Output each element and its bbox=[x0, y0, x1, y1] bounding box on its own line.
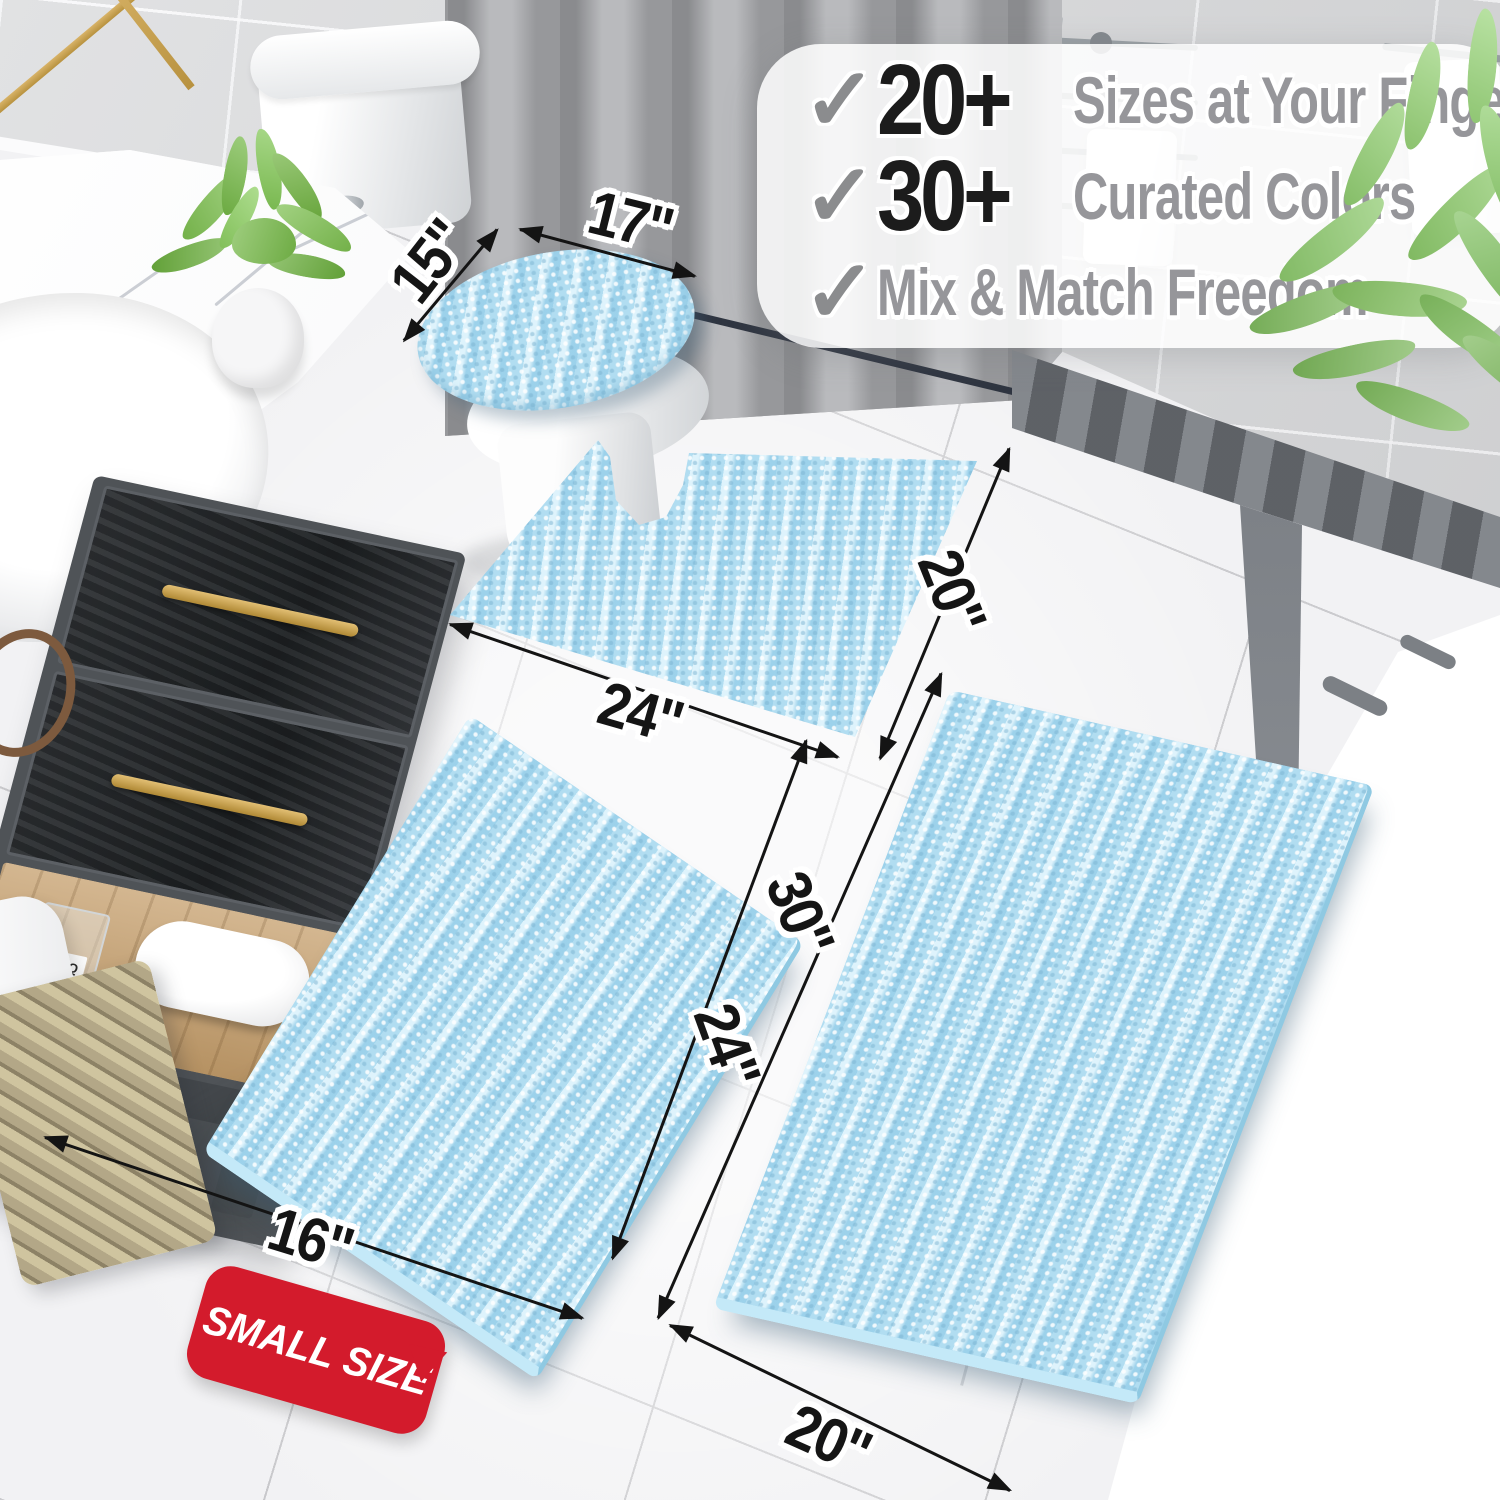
banner-number: 20+ bbox=[877, 50, 1044, 150]
banner-row-colors: ✓ 30+ Curated Colors bbox=[803, 150, 1500, 242]
check-icon: ✓ bbox=[803, 152, 877, 240]
banner-number: 30+ bbox=[877, 146, 1044, 246]
bath-rug-product-image: MISQ 15" 17" 24" 20" 24" 30" bbox=[0, 0, 1500, 1500]
leaf bbox=[232, 218, 296, 264]
check-icon: ✓ bbox=[803, 56, 877, 144]
plant-pot bbox=[212, 288, 304, 388]
check-icon: ✓ bbox=[803, 248, 877, 336]
